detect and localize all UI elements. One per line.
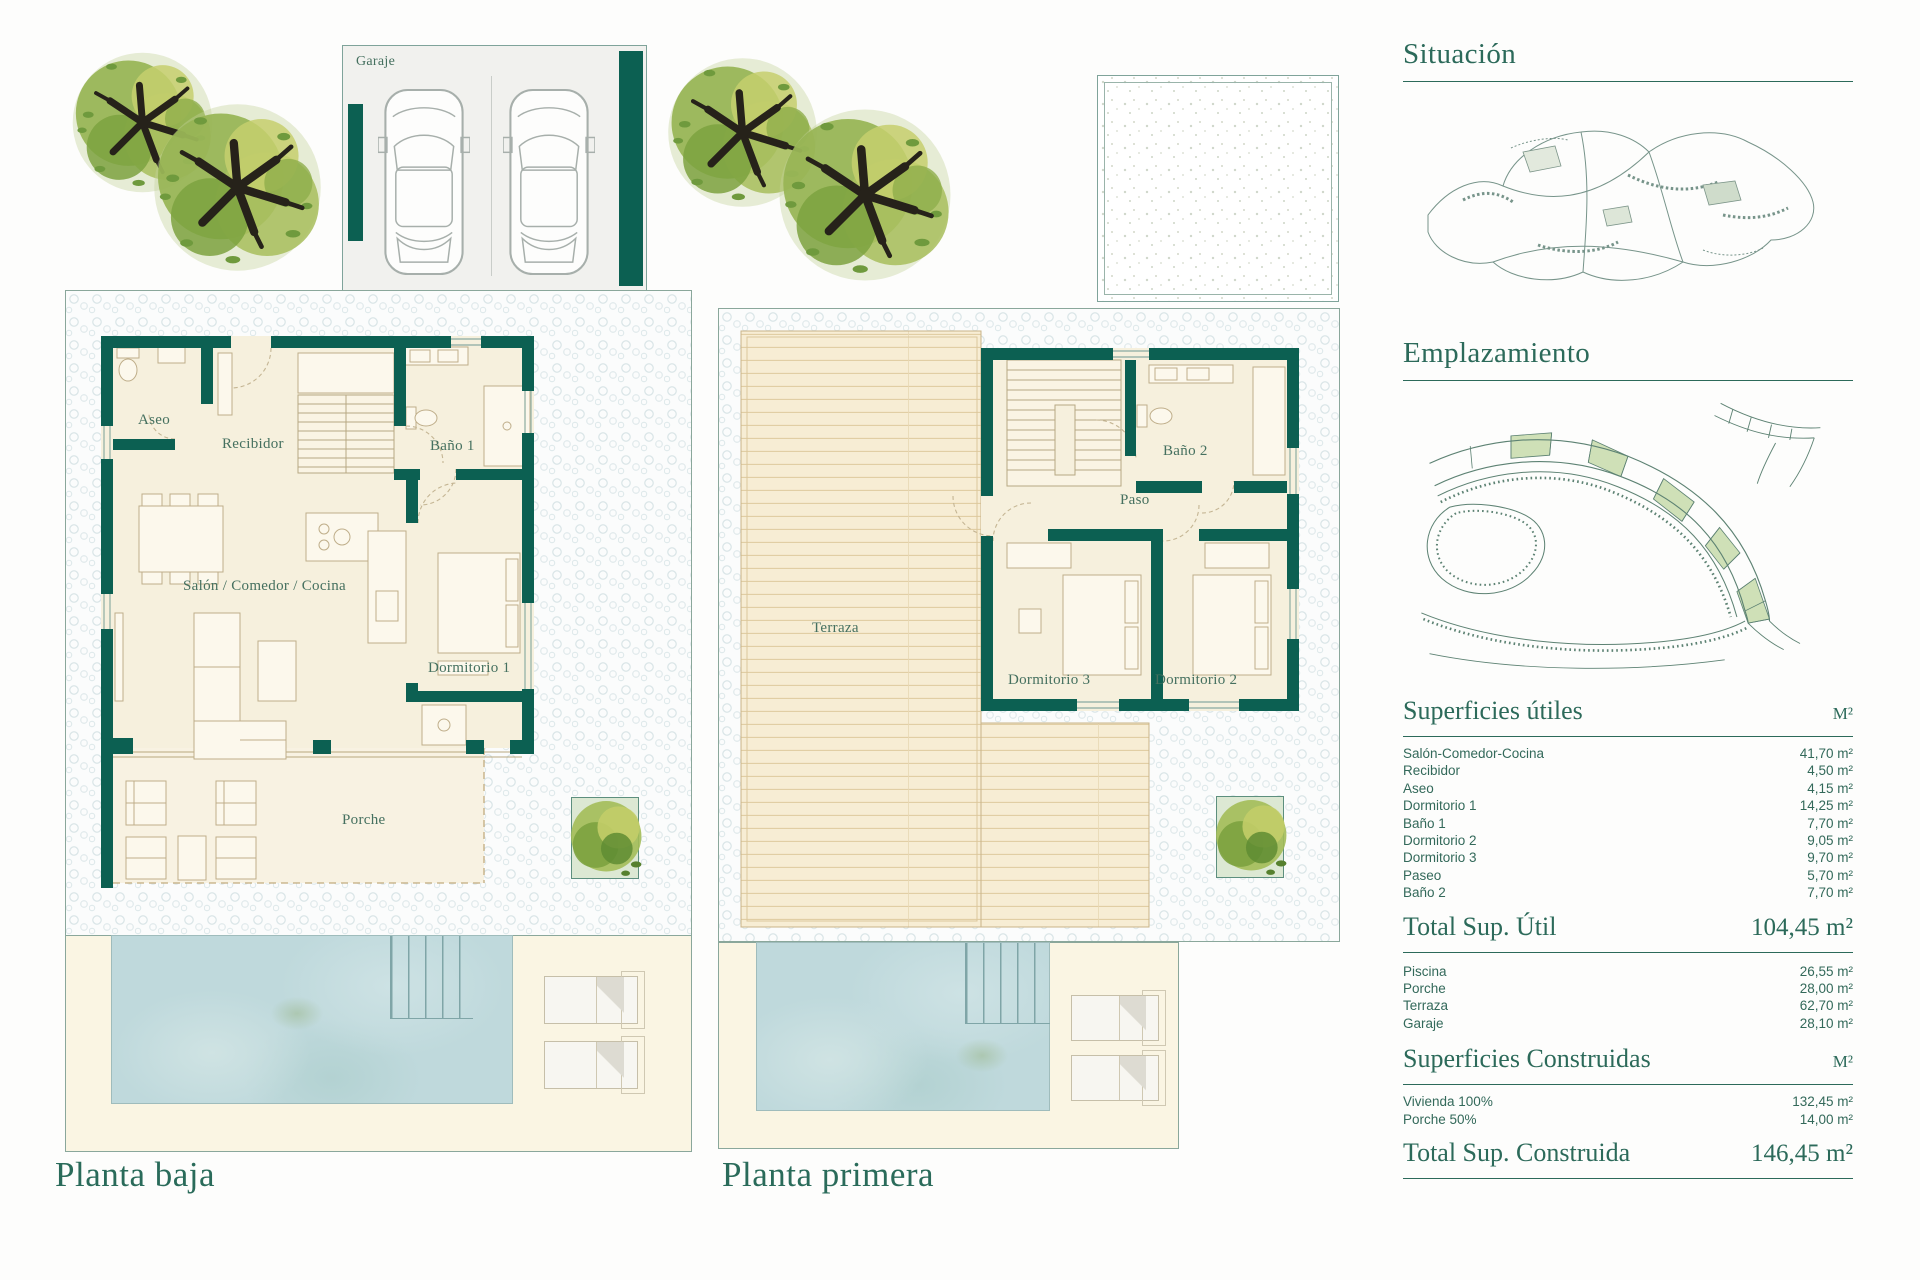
- row-label: Terraza: [1403, 997, 1448, 1014]
- trees-ground-floor: [50, 40, 370, 290]
- row-label: Vivienda 100%: [1403, 1093, 1493, 1110]
- divider: [1403, 81, 1853, 82]
- first-pool-area: [718, 942, 1179, 1149]
- garage-divider: [491, 76, 492, 276]
- garage-roof: [1097, 75, 1339, 302]
- row-label: Salón-Comedor-Cocina: [1403, 745, 1544, 762]
- ground-pool-area: [65, 935, 692, 1152]
- row-value: 5,70 m²: [1807, 867, 1853, 884]
- ground-floor-plot: [65, 290, 692, 937]
- car-icon: [378, 84, 470, 280]
- row-value: 26,55 m²: [1800, 963, 1853, 980]
- table-row: Porche 50%14,00 m²: [1403, 1111, 1853, 1128]
- row-label: Baño 2: [1403, 884, 1446, 901]
- useful-table-title: Superficies útiles: [1403, 696, 1583, 726]
- sun-lounger: [544, 1041, 638, 1089]
- table-row: Dormitorio 114,25 m²: [1403, 797, 1853, 814]
- table-row: Dormitorio 39,70 m²: [1403, 849, 1853, 866]
- divider: [1403, 1178, 1853, 1179]
- table-row: Baño 27,70 m²: [1403, 884, 1853, 901]
- useful-table-unit: M²: [1833, 704, 1853, 724]
- divider: [1403, 380, 1853, 381]
- sun-lounger: [544, 976, 638, 1024]
- row-value: 28,00 m²: [1800, 980, 1853, 997]
- row-value: 132,45 m²: [1792, 1093, 1853, 1110]
- brochure-page: Garaje: [0, 0, 1920, 1280]
- table-row: Recibidor4,50 m²: [1403, 762, 1853, 779]
- info-panel: Situación Emplazamiento: [1403, 38, 1853, 1179]
- total-useful-label: Total Sup. Útil: [1403, 912, 1556, 942]
- pool: [756, 942, 1050, 1111]
- garage-wall-right: [619, 51, 643, 286]
- room-label-porche: Porche: [342, 812, 385, 829]
- total-built-label: Total Sup. Construida: [1403, 1138, 1630, 1168]
- row-label: Garaje: [1403, 1015, 1444, 1032]
- plan-title-ground: Planta baja: [55, 1155, 215, 1195]
- pool-steps: [390, 936, 473, 1019]
- garage-box: Garaje: [342, 45, 647, 292]
- car-icon: [503, 84, 595, 280]
- useful-table: Salón-Comedor-Cocina41,70 m²Recibidor4,5…: [1403, 745, 1853, 902]
- bush-box: [571, 797, 639, 879]
- room-label-garaje: Garaje: [356, 54, 395, 70]
- table-row: Aseo4,15 m²: [1403, 780, 1853, 797]
- divider: [1403, 952, 1853, 953]
- total-built-value: 146,45 m²: [1751, 1140, 1853, 1168]
- table-row: Piscina26,55 m²: [1403, 963, 1853, 980]
- row-value: 28,10 m²: [1800, 1015, 1853, 1032]
- built-table-unit: M²: [1833, 1052, 1853, 1072]
- sun-lounger: [1071, 995, 1159, 1041]
- row-label: Dormitorio 1: [1403, 797, 1477, 814]
- pool-steps: [965, 943, 1050, 1024]
- situacion-title: Situación: [1403, 38, 1853, 71]
- room-label-terraza: Terraza: [812, 620, 859, 637]
- room-label-dormitorio1: Dormitorio 1: [428, 660, 510, 677]
- room-label-dormitorio2: Dormitorio 2: [1155, 672, 1237, 689]
- row-value: 4,50 m²: [1807, 762, 1853, 779]
- table-row: Salón-Comedor-Cocina41,70 m²: [1403, 745, 1853, 762]
- room-label-dormitorio3: Dormitorio 3: [1008, 672, 1090, 689]
- row-label: Piscina: [1403, 963, 1447, 980]
- outdoor-table: Piscina26,55 m²Porche28,00 m²Terraza62,7…: [1403, 963, 1853, 1033]
- row-value: 9,05 m²: [1807, 832, 1853, 849]
- row-label: Recibidor: [1403, 762, 1460, 779]
- room-label-aseo: Aseo: [138, 412, 170, 429]
- total-useful-value: 104,45 m²: [1751, 914, 1853, 942]
- room-label-recibidor: Recibidor: [222, 436, 284, 453]
- table-row: Baño 17,70 m²: [1403, 815, 1853, 832]
- row-value: 9,70 m²: [1807, 849, 1853, 866]
- row-value: 41,70 m²: [1800, 745, 1853, 762]
- row-label: Aseo: [1403, 780, 1434, 797]
- row-value: 62,70 m²: [1800, 997, 1853, 1014]
- room-label-salon: Salón / Comedor / Cocina: [183, 578, 346, 595]
- divider: [1403, 1084, 1853, 1085]
- plan-title-first: Planta primera: [722, 1155, 934, 1195]
- table-row: Vivienda 100%132,45 m²: [1403, 1093, 1853, 1110]
- trees-first-floor: [645, 45, 985, 295]
- row-value: 4,15 m²: [1807, 780, 1853, 797]
- situacion-map: [1403, 90, 1853, 315]
- row-label: Porche: [1403, 980, 1446, 997]
- row-label: Dormitorio 3: [1403, 849, 1477, 866]
- row-label: Dormitorio 2: [1403, 832, 1477, 849]
- table-row: Paseo5,70 m²: [1403, 867, 1853, 884]
- room-label-paso: Paso: [1120, 492, 1150, 509]
- bush-box: [1216, 796, 1284, 878]
- garage-wall-left: [348, 104, 363, 241]
- row-label: Paseo: [1403, 867, 1441, 884]
- sun-lounger: [1071, 1055, 1159, 1101]
- row-value: 14,00 m²: [1800, 1111, 1853, 1128]
- emplazamiento-title: Emplazamiento: [1403, 337, 1853, 370]
- room-label-bano2: Baño 2: [1163, 443, 1208, 460]
- row-value: 14,25 m²: [1800, 797, 1853, 814]
- table-row: Garaje28,10 m²: [1403, 1015, 1853, 1032]
- built-table: Vivienda 100%132,45 m²Porche 50%14,00 m²: [1403, 1093, 1853, 1128]
- room-label-bano1: Baño 1: [430, 438, 475, 455]
- row-value: 7,70 m²: [1807, 815, 1853, 832]
- table-row: Dormitorio 29,05 m²: [1403, 832, 1853, 849]
- table-row: Terraza62,70 m²: [1403, 997, 1853, 1014]
- row-label: Baño 1: [1403, 815, 1446, 832]
- row-label: Porche 50%: [1403, 1111, 1477, 1128]
- divider: [1403, 736, 1853, 737]
- row-value: 7,70 m²: [1807, 884, 1853, 901]
- emplazamiento-map: [1403, 387, 1853, 672]
- built-table-title: Superficies Construidas: [1403, 1044, 1651, 1074]
- pool: [111, 935, 513, 1104]
- table-row: Porche28,00 m²: [1403, 980, 1853, 997]
